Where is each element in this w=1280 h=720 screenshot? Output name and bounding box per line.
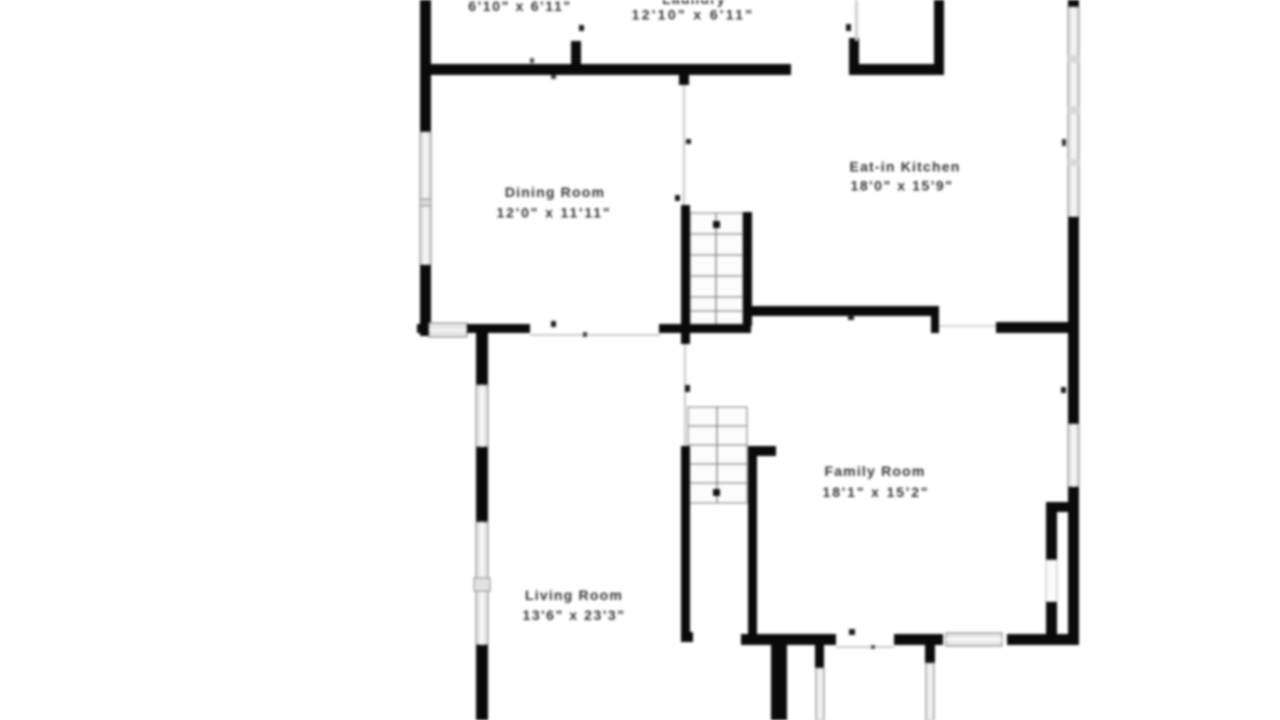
svg-text:Dining Room: Dining Room — [505, 184, 605, 200]
svg-text:6'10" x 6'11": 6'10" x 6'11" — [468, 0, 572, 14]
svg-text:13'6" x 23'3": 13'6" x 23'3" — [522, 607, 625, 623]
svg-text:12'0" x 11'11": 12'0" x 11'11" — [496, 205, 611, 221]
svg-text:18'0" x 15'9": 18'0" x 15'9" — [850, 178, 953, 194]
svg-text:Family Room: Family Room — [824, 463, 925, 479]
svg-text:18'1" x 15'2": 18'1" x 15'2" — [823, 484, 930, 500]
svg-text:Eat-in Kitchen: Eat-in Kitchen — [850, 159, 961, 175]
svg-text:12'10" x 6'11": 12'10" x 6'11" — [632, 7, 755, 23]
svg-text:Living Room: Living Room — [525, 587, 623, 603]
